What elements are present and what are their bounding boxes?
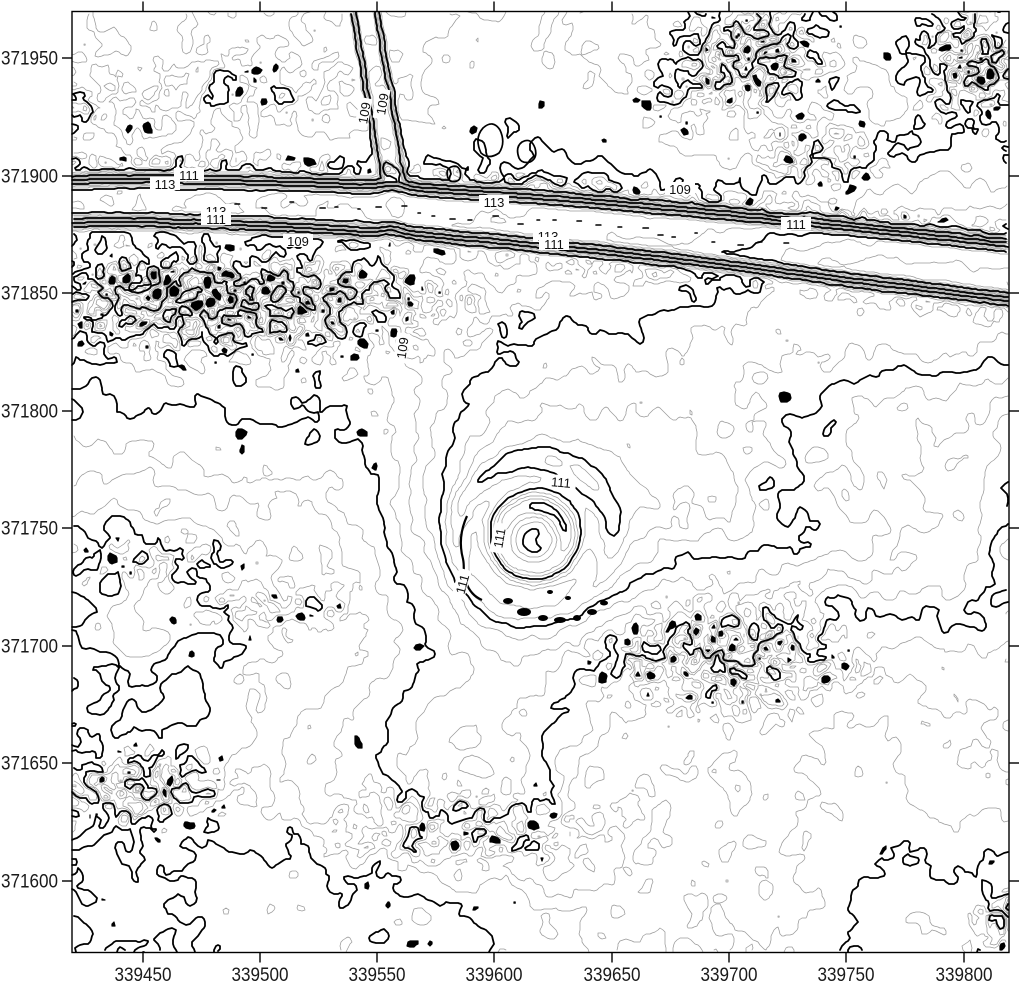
svg-text:339750: 339750	[818, 964, 875, 985]
svg-text:339800: 339800	[936, 964, 993, 985]
svg-text:111: 111	[786, 217, 806, 232]
svg-text:339550: 339550	[349, 964, 406, 985]
svg-text:371900: 371900	[1, 166, 58, 188]
svg-text:339600: 339600	[466, 964, 523, 985]
svg-text:339500: 339500	[232, 964, 289, 985]
svg-text:371750: 371750	[1, 518, 58, 540]
svg-text:371800: 371800	[1, 401, 58, 423]
svg-text:111: 111	[550, 474, 571, 491]
svg-text:339700: 339700	[701, 964, 758, 985]
svg-text:371700: 371700	[1, 636, 58, 658]
svg-text:113: 113	[155, 177, 176, 192]
svg-text:371950: 371950	[1, 48, 58, 70]
svg-text:109: 109	[287, 234, 309, 249]
svg-text:371650: 371650	[1, 753, 58, 775]
svg-text:109: 109	[394, 336, 412, 360]
svg-text:339650: 339650	[584, 964, 641, 985]
svg-text:113: 113	[484, 195, 505, 210]
svg-text:109: 109	[669, 182, 691, 197]
svg-text:339450: 339450	[115, 964, 172, 985]
svg-text:371850: 371850	[1, 283, 58, 305]
svg-text:111: 111	[206, 212, 226, 227]
svg-text:111: 111	[544, 237, 564, 252]
svg-text:371600: 371600	[1, 871, 58, 893]
svg-text:111: 111	[179, 168, 199, 183]
